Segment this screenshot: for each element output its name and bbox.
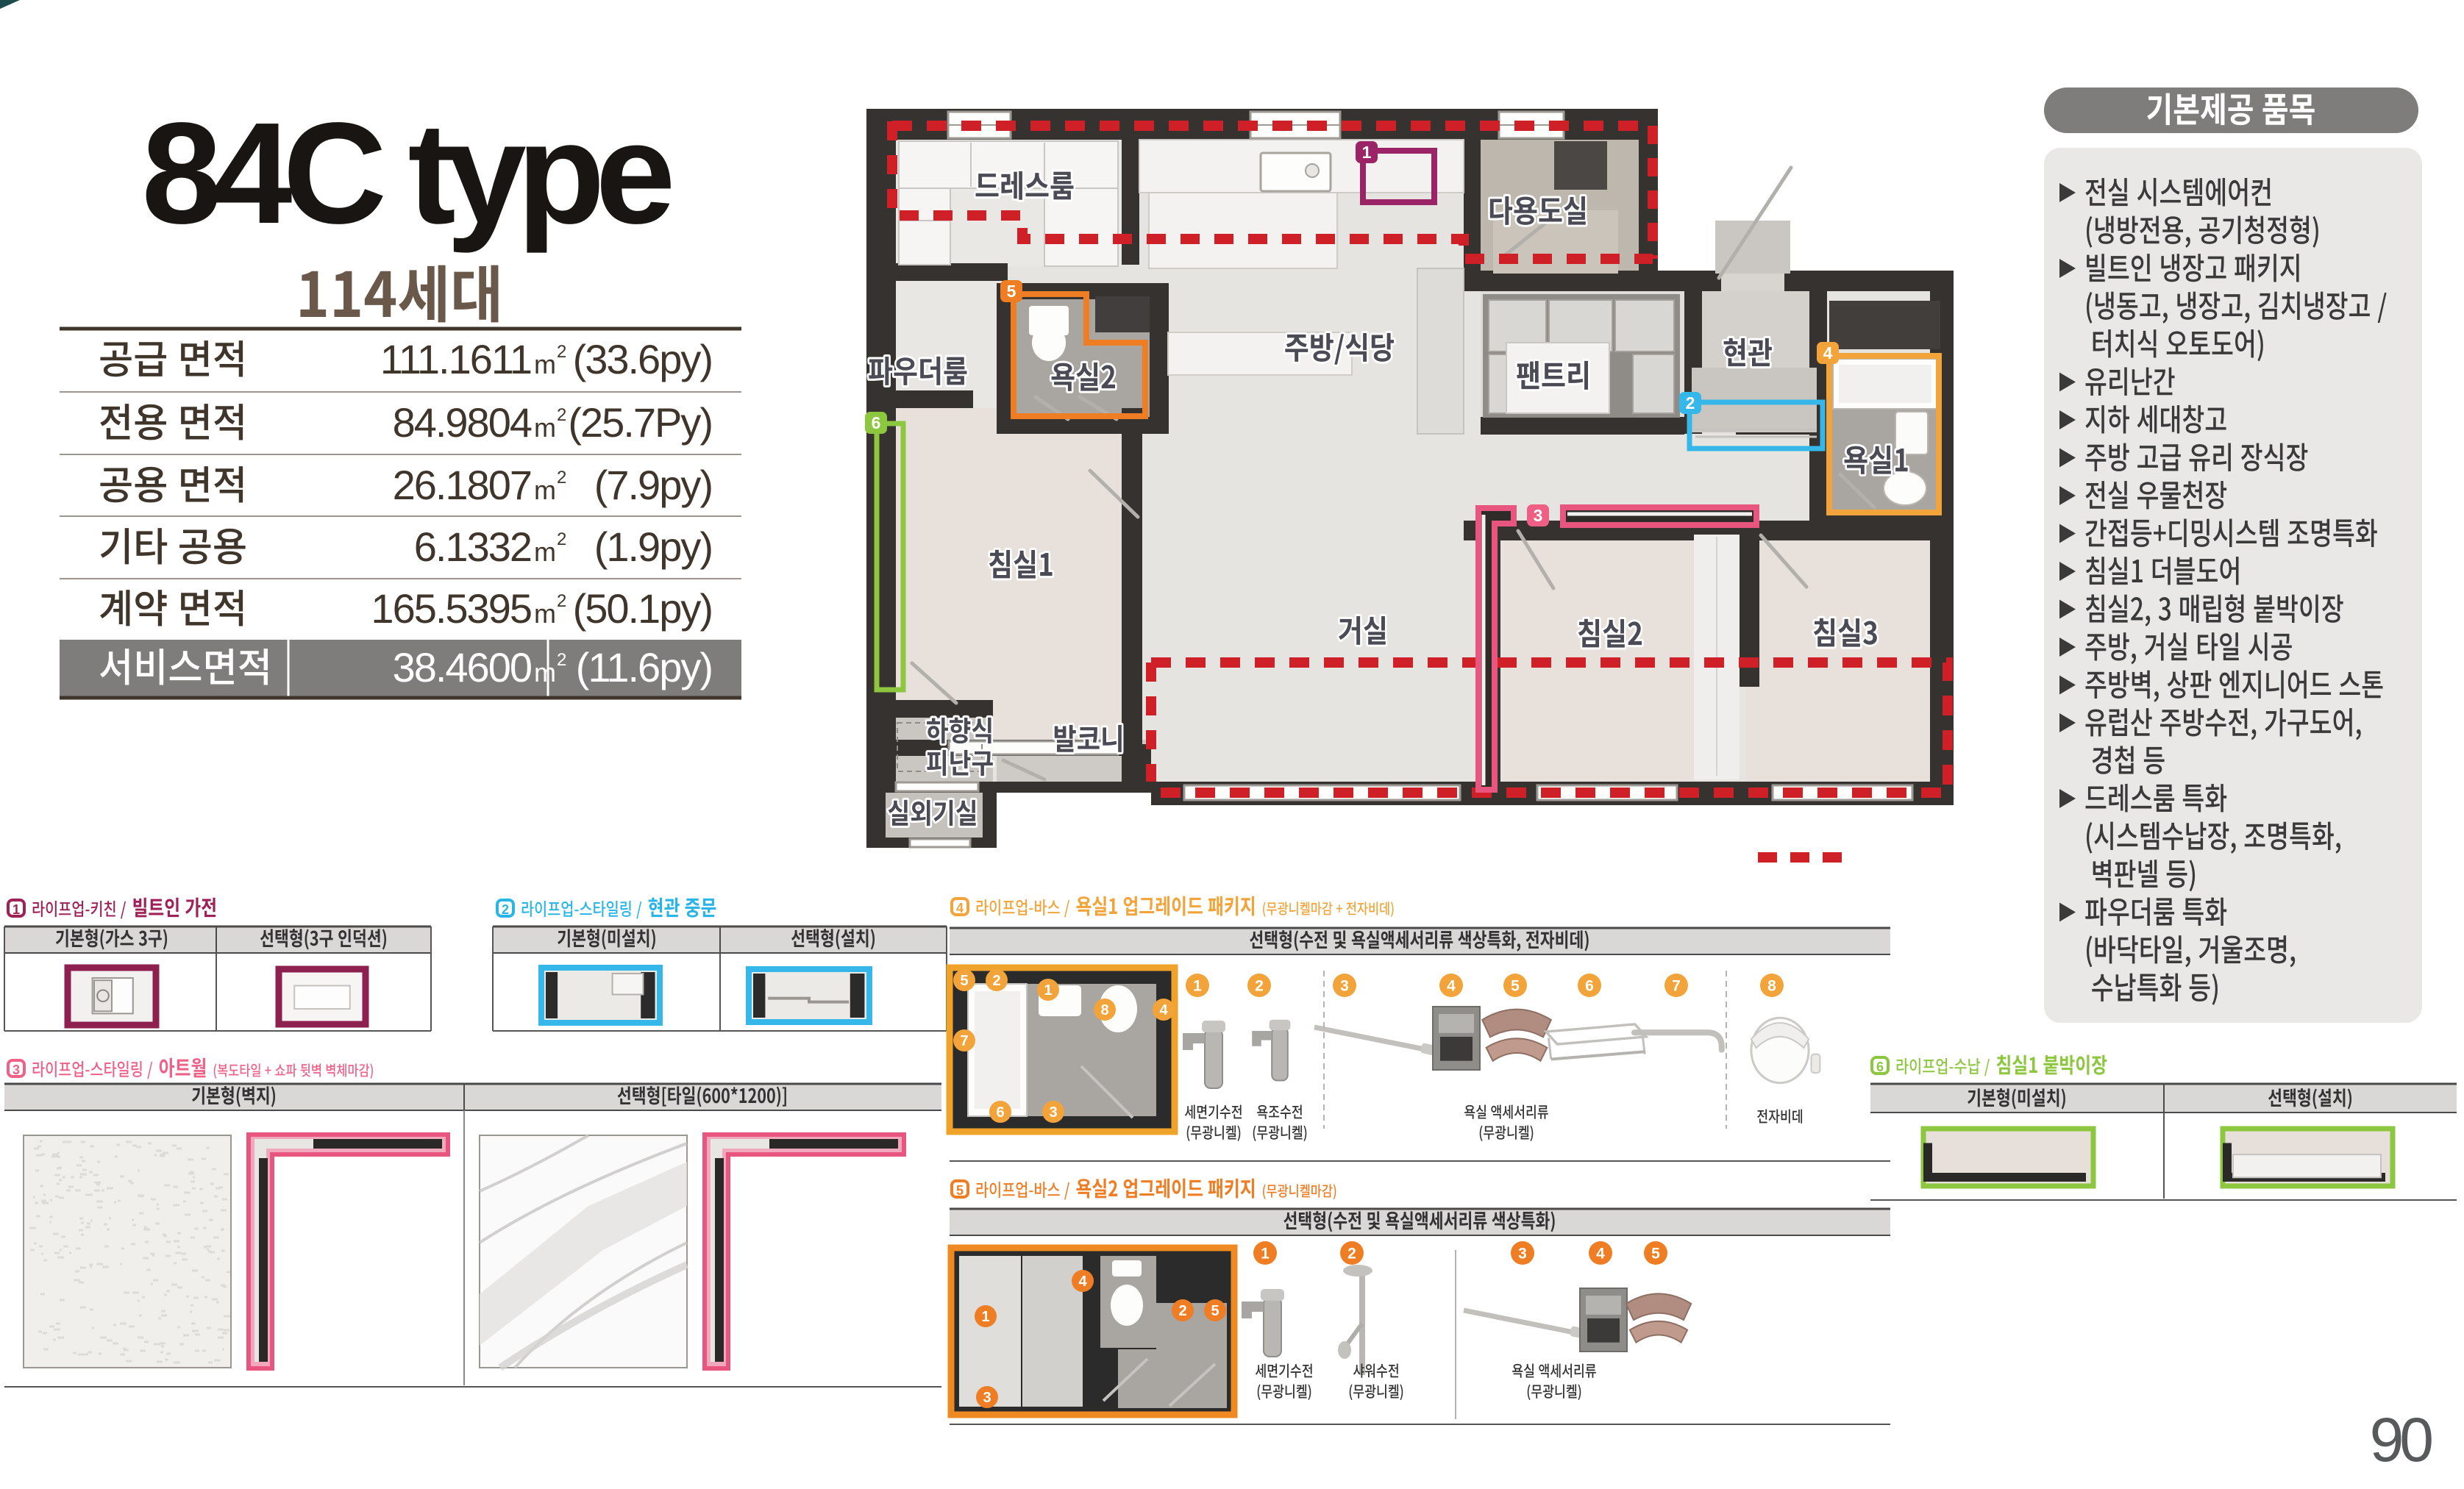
svg-text:6: 6 <box>1585 977 1594 994</box>
svg-text:1: 1 <box>1362 143 1372 162</box>
svg-text:3: 3 <box>1518 1245 1527 1262</box>
svg-text:2: 2 <box>557 342 566 362</box>
svg-text:(33.6py): (33.6py) <box>573 336 712 382</box>
svg-text:m: m <box>534 475 556 505</box>
svg-text:5: 5 <box>1511 977 1520 994</box>
svg-text:(1.9py): (1.9py) <box>594 524 712 570</box>
svg-text:3: 3 <box>1049 1104 1057 1121</box>
svg-text:2: 2 <box>557 529 566 549</box>
svg-text:m: m <box>534 599 556 629</box>
svg-text:84C type: 84C type <box>141 93 671 254</box>
svg-text:3: 3 <box>983 1390 991 1406</box>
svg-text:m: m <box>534 413 556 443</box>
svg-text:165.5395: 165.5395 <box>371 585 531 632</box>
svg-text:2: 2 <box>557 405 566 425</box>
svg-text:2: 2 <box>1347 1245 1356 1262</box>
svg-text:2: 2 <box>557 468 566 488</box>
svg-text:6.1332: 6.1332 <box>414 524 531 570</box>
svg-text:26.1807: 26.1807 <box>393 462 531 508</box>
svg-text:2: 2 <box>992 973 1000 989</box>
svg-text:111.1611: 111.1611 <box>380 336 531 382</box>
svg-text:2: 2 <box>1255 977 1264 994</box>
svg-text:(25.7Py): (25.7Py) <box>568 399 712 446</box>
svg-text:2: 2 <box>1178 1303 1186 1319</box>
svg-text:84.9804: 84.9804 <box>393 399 532 446</box>
svg-text:4: 4 <box>1078 1274 1087 1290</box>
svg-text:m: m <box>534 537 556 567</box>
svg-text:m: m <box>534 349 556 379</box>
svg-text:5: 5 <box>1211 1303 1219 1319</box>
svg-text:7: 7 <box>960 1033 968 1049</box>
svg-text:4: 4 <box>1159 1002 1168 1018</box>
svg-text:4: 4 <box>1596 1245 1605 1262</box>
svg-text:6: 6 <box>996 1104 1004 1121</box>
svg-text:7: 7 <box>1672 977 1681 994</box>
svg-text:m: m <box>534 657 556 688</box>
svg-text:3: 3 <box>13 1063 20 1077</box>
svg-text:1: 1 <box>13 902 20 917</box>
svg-text:90: 90 <box>2370 1405 2432 1474</box>
svg-text:2: 2 <box>557 591 566 611</box>
svg-text:1: 1 <box>1261 1245 1270 1262</box>
svg-text:4: 4 <box>1823 343 1833 363</box>
svg-text:8: 8 <box>1100 1002 1108 1018</box>
svg-text:6: 6 <box>1876 1060 1884 1074</box>
svg-text:3: 3 <box>1534 506 1543 525</box>
svg-text:8: 8 <box>1767 977 1776 994</box>
svg-text:4: 4 <box>956 901 964 915</box>
svg-text:5: 5 <box>960 973 968 989</box>
svg-text:6: 6 <box>872 413 881 432</box>
svg-text:3: 3 <box>1340 977 1349 994</box>
svg-text:38.4600: 38.4600 <box>393 644 531 690</box>
svg-text:(50.1py): (50.1py) <box>573 585 712 632</box>
svg-text:1: 1 <box>981 1309 989 1325</box>
svg-text:5: 5 <box>1007 282 1016 301</box>
svg-text:(7.9py): (7.9py) <box>594 462 712 508</box>
svg-text:5: 5 <box>1651 1245 1660 1262</box>
svg-text:5: 5 <box>956 1183 964 1198</box>
svg-text:2: 2 <box>502 902 509 917</box>
svg-text:4: 4 <box>1447 977 1456 994</box>
svg-text:2: 2 <box>557 650 566 670</box>
svg-text:1: 1 <box>1193 977 1202 994</box>
svg-text:(11.6py): (11.6py) <box>576 644 712 690</box>
svg-text:1: 1 <box>1044 982 1052 999</box>
svg-text:2: 2 <box>1686 393 1695 413</box>
